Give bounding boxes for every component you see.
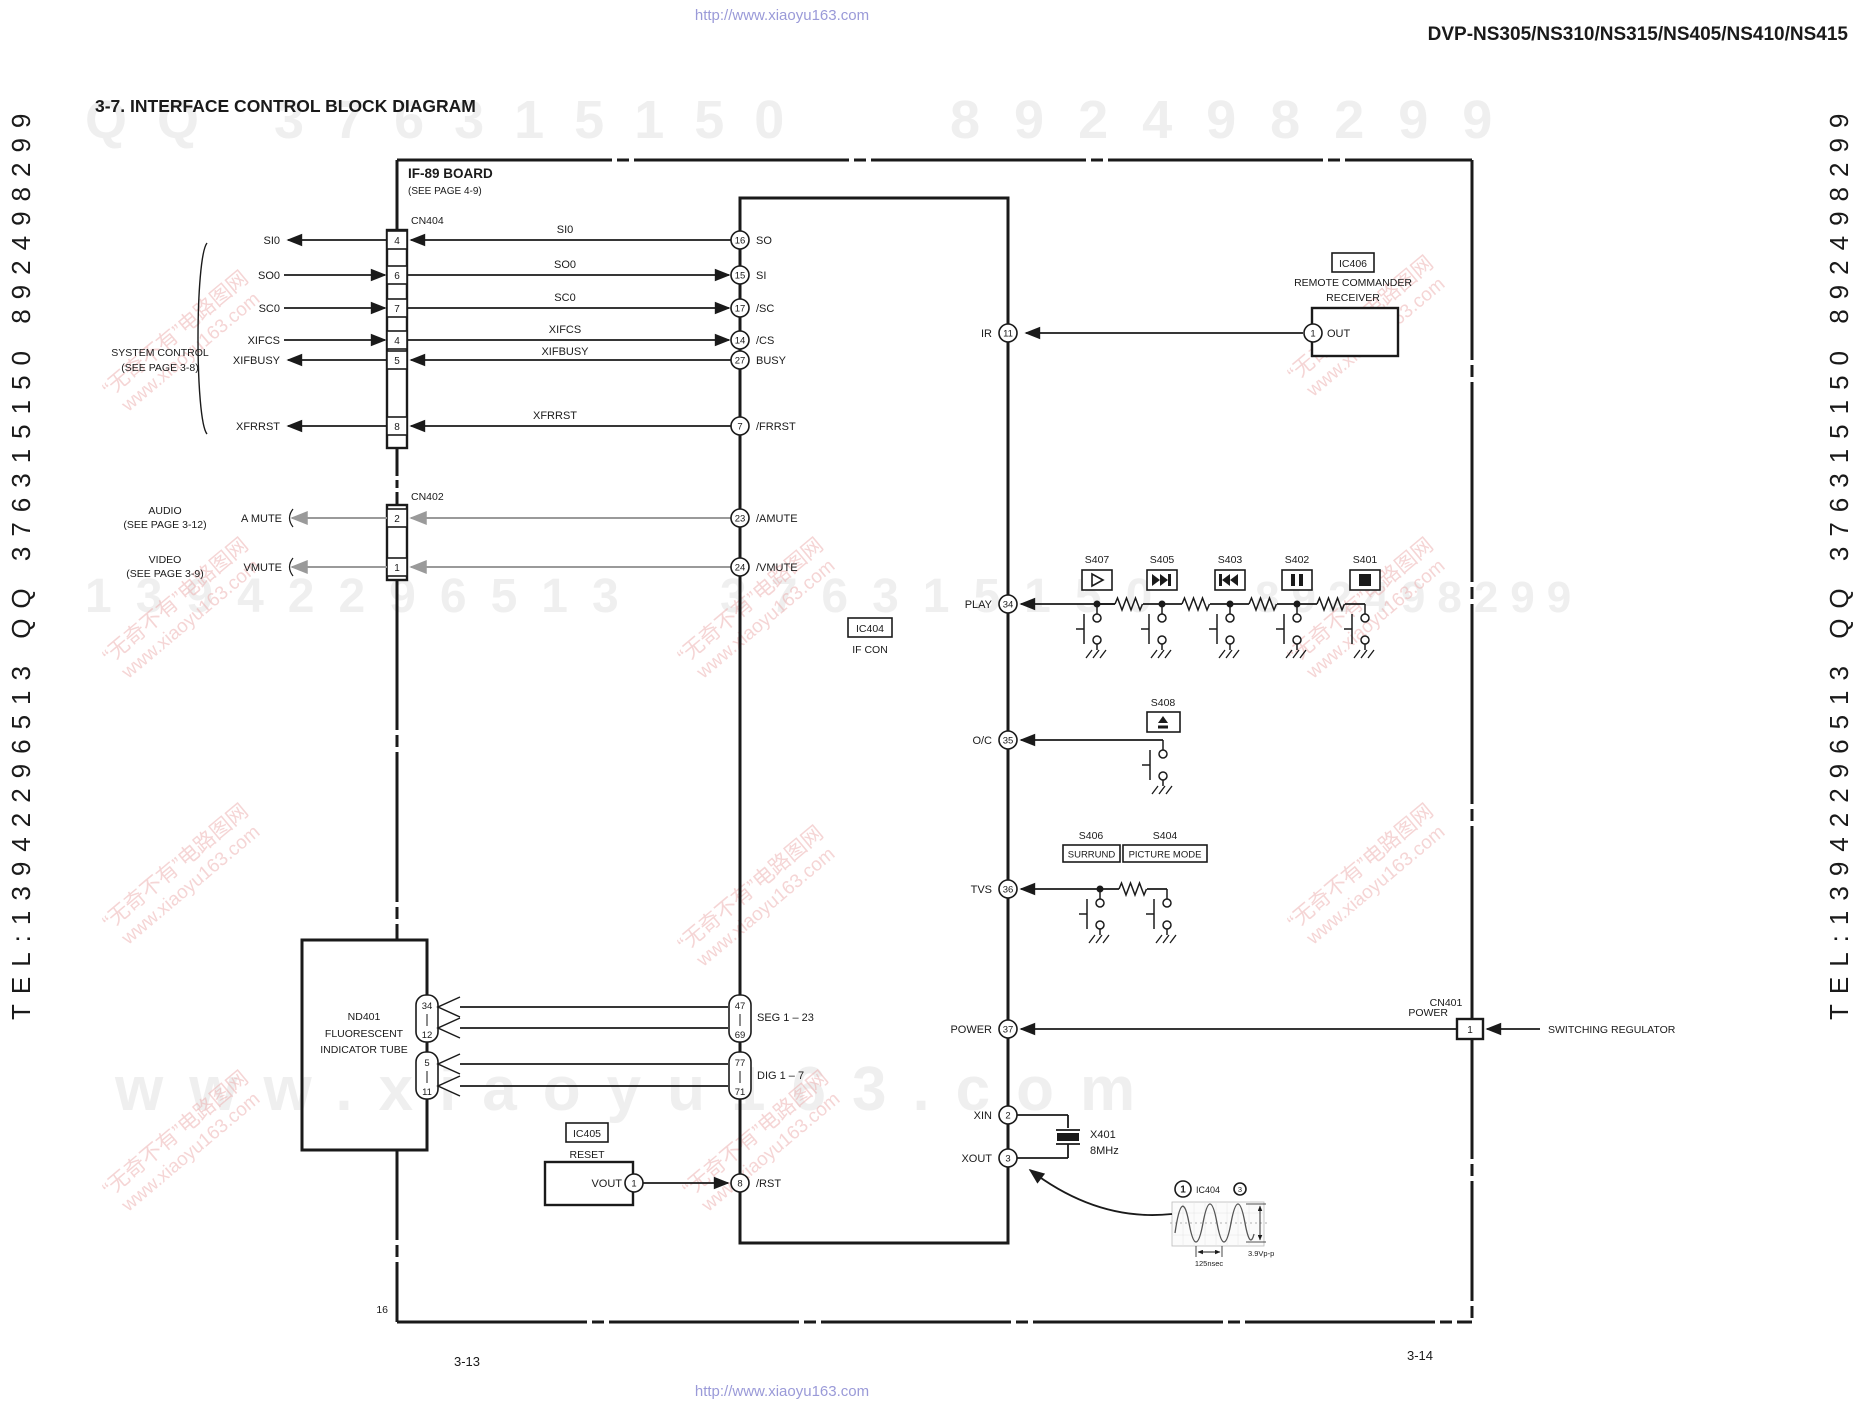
cn404-pin: 6: [394, 271, 400, 282]
ic405-pin-num: 1: [631, 1179, 636, 1190]
s401-label: S401: [1353, 554, 1378, 566]
waveform-annotation: 1 IC404 3 125nsec 3.9Vp-p: [1030, 1170, 1274, 1268]
pin-num: 7: [737, 422, 742, 433]
pin-name-ir: IR: [981, 328, 992, 340]
bottom-url-watermark: http://www.xiaoyu163.com: [695, 1383, 869, 1400]
ic404-seg-pins: 47: [735, 1001, 746, 1012]
pin-num: 24: [735, 563, 746, 574]
ic404-dig-pins: 77: [735, 1058, 746, 1069]
pin-name-xout: XOUT: [961, 1153, 992, 1165]
watermark-cn: “无奇不有”电路图网: [1284, 800, 1438, 935]
ic404-ref: IC404: [856, 623, 884, 635]
oc-eject-circuit: S408: [1021, 697, 1180, 794]
tvs-circuit: S406 S404 SURRUND PICTURE MODE: [1021, 830, 1207, 943]
pin-num: 15: [735, 271, 746, 282]
pin-name-oc: O/C: [972, 735, 992, 747]
pin-name-so: SO: [756, 235, 772, 247]
pin-name-tvs: TVS: [971, 884, 992, 896]
page-number-left: 3-13: [454, 1354, 480, 1369]
page-title: 3-7. INTERFACE CONTROL BLOCK DIAGRAM: [95, 96, 476, 116]
watermark-numbers: 892498299: [950, 90, 1526, 150]
surround-button-label: SURRUND: [1068, 850, 1116, 861]
pin-name-sc: /SC: [756, 303, 774, 315]
wire-label-xifcs: XIFCS: [549, 324, 581, 336]
signal-so0: SO0: [258, 270, 280, 282]
s404-label: S404: [1153, 830, 1178, 842]
pin-num: 37: [1003, 1025, 1014, 1036]
cn404-ref: CN404: [411, 215, 444, 227]
crystal-icon: [1057, 1133, 1079, 1141]
cn402-pin: 2: [394, 514, 400, 525]
switch-s408: [1142, 740, 1172, 794]
pin-name-cs: /CS: [756, 335, 774, 347]
x401-freq: 8MHz: [1090, 1145, 1119, 1157]
seg-bus-label: SEG 1 – 23: [757, 1012, 814, 1024]
cn402-pin: 1: [394, 563, 400, 574]
signal-vmute: VMUTE: [244, 562, 283, 574]
pin-num: 34: [1003, 600, 1014, 611]
ic406-pin-num: 1: [1310, 329, 1315, 340]
switch-s406: [1079, 889, 1109, 943]
cn404-connector: CN404 4 6 7 4 5 8: [387, 215, 444, 448]
waveform-pin: 3: [1238, 1185, 1242, 1194]
pin-num: 11: [1003, 329, 1013, 340]
cn404-pin: 4: [394, 236, 400, 247]
pin-name-vmute: /VMUTE: [756, 562, 798, 574]
pin-num: 35: [1003, 736, 1014, 747]
bus-arrow: [438, 997, 460, 1017]
cn402-ref: CN402: [411, 491, 444, 503]
service-manual-page: QQ 376315150 892498299 13942296513 37631…: [0, 0, 1865, 1402]
signal-sc0: SC0: [259, 303, 280, 315]
model-header: DVP-NS305/NS310/NS315/NS405/NS410/NS415: [1428, 24, 1849, 45]
s408-label: S408: [1151, 697, 1176, 709]
wire-label-xfrrst: XFRRST: [533, 410, 577, 422]
system-control-see-page: (SEE PAGE 3-8): [121, 362, 198, 374]
cn404-pin: 7: [394, 304, 400, 315]
pin-name-busy: BUSY: [756, 355, 787, 367]
top-url-watermark: http://www.xiaoyu163.com: [695, 7, 869, 24]
watermark-cn: “无奇不有”电路图网: [99, 267, 253, 402]
ic404-name: IF CON: [852, 644, 888, 656]
ic406-ref: IC406: [1339, 258, 1367, 270]
pin-num: 23: [735, 514, 746, 525]
probe-number: 1: [1180, 1185, 1186, 1196]
nd401-pin-range: 11: [422, 1087, 432, 1098]
waveform-vpp: 3.9Vp-p: [1248, 1249, 1274, 1258]
waveform-ic-ref: IC404: [1196, 1185, 1220, 1195]
wire-label-si0: SI0: [557, 224, 574, 236]
watermark-cn: “无奇不有”电路图网: [99, 800, 253, 935]
pin-name-power: POWER: [950, 1024, 992, 1036]
stop-icon: [1359, 574, 1371, 586]
s406-label: S406: [1079, 830, 1104, 842]
nd401-pin-range: 12: [422, 1030, 433, 1041]
wire-label-sc0: SC0: [554, 292, 575, 304]
nd401-name2: INDICATOR TUBE: [320, 1044, 408, 1056]
bus-arrow: [438, 1018, 460, 1038]
edge-watermark-left: TEL:13942296513 QQ 376315150 892498299: [6, 104, 36, 1020]
board-edge-pin-16: 16: [376, 1304, 388, 1316]
cn404-pin: 5: [394, 356, 400, 367]
ic405-pin-name: VOUT: [591, 1178, 622, 1190]
s405-label: S405: [1150, 554, 1175, 566]
pin-num: 14: [735, 336, 746, 347]
pin-num: 8: [737, 1179, 742, 1190]
ic404-seg-pins: 69: [735, 1030, 746, 1041]
x401-ref: X401: [1090, 1129, 1116, 1141]
pin-num: 16: [735, 236, 746, 247]
power-circuit: 1 CN401 POWER SWITCHING REGULATOR: [1021, 997, 1676, 1039]
waveform-period: 125nsec: [1195, 1259, 1224, 1268]
cn401-pin: 1: [1467, 1025, 1473, 1036]
nd401-pin-range: 5: [424, 1058, 429, 1069]
ic406-name2: RECEIVER: [1326, 292, 1380, 304]
edge-watermark-right: TEL:13942296513 QQ 376315150 892498299: [1824, 104, 1854, 1020]
ic406-remote-receiver: IC406 REMOTE COMMANDER RECEIVER 1 OUT: [1026, 253, 1412, 356]
board-name: IF-89 BOARD: [408, 166, 493, 181]
cn404-to-ic404-wires: SI0 SO0 SC0 XIFCS XIFBUSY XFRRST: [407, 224, 731, 426]
board-see-page: (SEE PAGE 4-9): [408, 186, 482, 197]
pin-name-xin: XIN: [974, 1110, 992, 1122]
s403-label: S403: [1218, 554, 1243, 566]
picture-mode-button-label: PICTURE MODE: [1129, 850, 1202, 861]
pin-num: 27: [735, 356, 746, 367]
ic406-body: [1312, 308, 1398, 356]
cn404-pin: 8: [394, 422, 400, 433]
wire-label-xifbusy: XIFBUSY: [541, 346, 589, 358]
signal-si0: SI0: [263, 235, 280, 247]
signal-xfrrst: XFRRST: [236, 421, 280, 433]
cn404-left-signals: SI0 SO0 SC0 XIFCS XIFBUSY XFRRST SYSTEM …: [111, 235, 387, 434]
ic405-name: RESET: [569, 1149, 605, 1161]
system-control-label: SYSTEM CONTROL: [111, 347, 209, 359]
signal-xifbusy: XIFBUSY: [233, 355, 281, 367]
dig-bus-label: DIG 1 – 7: [757, 1070, 804, 1082]
audio-see-page: (SEE PAGE 3-12): [123, 519, 206, 531]
block-diagram-canvas: QQ 376315150 892498299 13942296513 37631…: [0, 0, 1865, 1402]
video-label: VIDEO: [149, 554, 182, 566]
nd401-pin-range: 34: [422, 1001, 433, 1012]
ic406-name1: REMOTE COMMANDER: [1294, 277, 1412, 289]
probe-arrow: [1030, 1170, 1172, 1215]
ic404-dig-pins: 71: [735, 1087, 746, 1098]
switch-s403: [1209, 604, 1239, 658]
pin-name-si: SI: [756, 270, 766, 282]
pin-name-play: PLAY: [965, 599, 993, 611]
pin-name-amute: /AMUTE: [756, 513, 798, 525]
signal-xifcs: XIFCS: [248, 335, 280, 347]
pin-name-frrst: /FRRST: [756, 421, 796, 433]
cn401-power-label: POWER: [1408, 1007, 1448, 1019]
nd401-ref: ND401: [348, 1011, 381, 1023]
watermark-cn: “无奇不有”电路图网: [674, 822, 828, 957]
wire-label-so0: SO0: [554, 259, 576, 271]
pin-num: 2: [1005, 1111, 1010, 1122]
switching-regulator-label: SWITCHING REGULATOR: [1548, 1024, 1676, 1036]
s402-label: S402: [1285, 554, 1310, 566]
pin-num: 17: [735, 304, 746, 315]
ic406-pin-name: OUT: [1327, 328, 1351, 340]
cn404-pin: 4: [394, 336, 400, 347]
pin-name-rst: /RST: [756, 1178, 781, 1190]
switch-s404: [1146, 889, 1176, 943]
nd401-name1: FLUORESCENT: [325, 1028, 404, 1040]
video-see-page: (SEE PAGE 3-9): [126, 568, 203, 580]
audio-label: AUDIO: [148, 505, 181, 517]
s407-label: S407: [1085, 554, 1110, 566]
pin-num: 3: [1005, 1154, 1010, 1165]
pin-num: 36: [1003, 885, 1014, 896]
ic405-ref: IC405: [573, 1128, 601, 1140]
signal-a-mute: A MUTE: [241, 513, 282, 525]
page-number-right: 3-14: [1407, 1348, 1433, 1363]
